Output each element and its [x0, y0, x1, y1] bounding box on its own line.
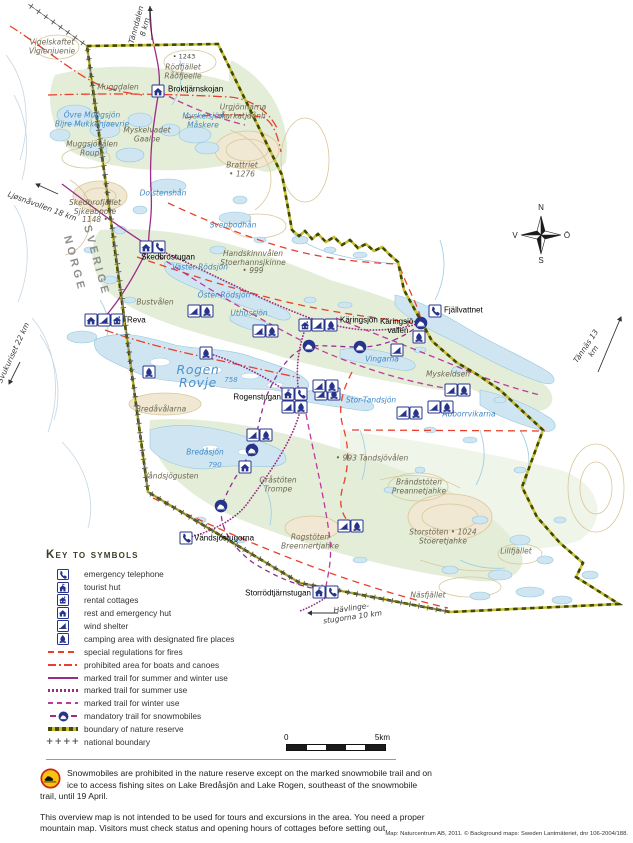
overview-note: This overview map is not intended to be … [40, 812, 432, 835]
purple-dash-swatch [48, 702, 78, 704]
legend-row-red-dash: special regulations for fires [46, 645, 316, 658]
legend-label: wind shelter [80, 621, 128, 631]
wind-shelter-icon [188, 305, 201, 318]
divider-line [46, 759, 396, 760]
wind-shelter-icon [253, 325, 266, 338]
wind-shelter-icon [391, 344, 404, 357]
legend-label: mandatory trail for snowmobiles [80, 711, 201, 721]
red-dashdot-swatch [48, 664, 78, 666]
legend: Key to symbols emergency telephonetouris… [46, 549, 316, 748]
camping-fireplace-icon [295, 401, 308, 414]
camping-fireplace-icon [201, 305, 214, 318]
snowmobile-warning: Snowmobiles are prohibited in the nature… [40, 768, 432, 803]
purple-dot-swatch [48, 689, 78, 691]
reserve-swatch [48, 727, 78, 730]
legend-label: prohibited area for boats and canoes [80, 660, 219, 670]
camping-fireplace-icon [351, 520, 364, 533]
scale-bar-segments [286, 744, 386, 751]
emergency-telephone-icon [57, 569, 69, 581]
scale-start-label: 0 [284, 733, 288, 742]
legend-label: rest and emergency hut [80, 608, 171, 618]
camping-fireplace-icon [413, 331, 426, 344]
legend-swatch [46, 569, 80, 581]
legend-label: emergency telephone [80, 569, 164, 579]
wind-shelter-icon [57, 620, 69, 632]
map-attribution: Map: Naturcentrum AB, 2011. © Background… [385, 831, 628, 837]
legend-title: Key to symbols [46, 549, 316, 561]
legend-row-cottage: rental cottages [46, 594, 316, 607]
wind-shelter-icon [282, 401, 295, 414]
legend-swatch [46, 607, 80, 619]
legend-row-resthut: rest and emergency hut [46, 607, 316, 620]
compass-west-label: V [512, 231, 518, 240]
legend-label: special regulations for fires [80, 647, 183, 657]
compass-east-label: Ö [564, 231, 570, 240]
map-stage: N Ö S V Vigelskaftet ViglenjuenieTänndal… [0, 0, 633, 843]
rental-cottage-icon [111, 314, 124, 327]
camping-fireplace-icon [260, 429, 273, 442]
legend-label: rental cottages [80, 595, 138, 605]
legend-swatch [46, 633, 80, 645]
legend-row-hut: tourist hut [46, 581, 316, 594]
tourist-hut-icon [282, 388, 295, 401]
camping-fireplace-icon [458, 384, 471, 397]
wind-shelter-icon [98, 314, 111, 327]
legend-row-phone: emergency telephone [46, 568, 316, 581]
legend-row-purple-dot: marked trail for summer use [46, 684, 316, 697]
compass-north-label: N [538, 203, 544, 212]
wind-shelter-icon [338, 520, 351, 533]
emergency-telephone-icon [429, 305, 442, 318]
legend-swatch [46, 620, 80, 632]
camping-fireplace-icon [325, 319, 338, 332]
legend-row-reserve: boundary of nature reserve [46, 723, 316, 736]
legend-label: boundary of nature reserve [80, 724, 184, 734]
scale-end-label: 5km [375, 733, 390, 742]
snowmobile-trail-icon [302, 339, 316, 353]
notes-block: Snowmobiles are prohibited in the nature… [40, 768, 432, 843]
legend-row-camp: camping area with designated fire places [46, 632, 316, 645]
snowmobile-prohibition-icon [40, 768, 61, 789]
wind-shelter-icon [312, 319, 325, 332]
snowmobile-trail-icon [414, 316, 428, 330]
rest-and-emergency-hut-icon [140, 241, 153, 254]
legend-label: marked trail for summer use [80, 685, 187, 695]
legend-row-wind: wind shelter [46, 620, 316, 633]
snowmobile-trail-swatch [46, 711, 80, 722]
emergency-telephone-icon [180, 532, 193, 545]
tourist-hut-icon [57, 582, 69, 594]
camping-fireplace-icon [441, 401, 454, 414]
wind-shelter-icon [247, 429, 260, 442]
rest-and-emergency-hut-icon [239, 461, 252, 474]
snowmobile-trail-icon [245, 443, 259, 457]
snowmobile-trail-icon [214, 499, 228, 513]
warning-text: Snowmobiles are prohibited in the nature… [40, 768, 432, 801]
wind-shelter-icon [397, 407, 410, 420]
rental-cottage-icon [57, 594, 69, 606]
red-dash-swatch [48, 651, 78, 653]
emergency-telephone-icon [326, 586, 339, 599]
rental-cottage-icon [299, 319, 312, 332]
compass-rose: N Ö S V [505, 200, 577, 266]
national-boundary-swatch: ++++ [46, 737, 80, 747]
rest-and-emergency-hut-icon [57, 607, 69, 619]
legend-row-sled-trail: mandatory trail for snowmobiles [46, 710, 316, 723]
legend-label: camping area with designated fire places [80, 634, 234, 644]
camping-fireplace-icon [326, 380, 339, 393]
legend-row-red-dashdot: prohibited area for boats and canoes [46, 658, 316, 671]
rest-and-emergency-hut-icon [152, 85, 165, 98]
legend-row-purple-dash: marked trail for winter use [46, 697, 316, 710]
legend-label: marked trail for summer and winter use [80, 673, 228, 683]
wind-shelter-icon [445, 384, 458, 397]
snowmobile-trail-icon [353, 340, 367, 354]
legend-label: tourist hut [80, 582, 120, 592]
legend-row-national: ++++national boundary [46, 736, 316, 749]
legend-label: marked trail for winter use [80, 698, 179, 708]
legend-row-purple-solid: marked trail for summer and winter use [46, 671, 316, 684]
camping-fireplace-icon [143, 366, 156, 379]
wind-shelter-icon [313, 380, 326, 393]
legend-swatch [46, 594, 80, 606]
camping-fireplace-icon [410, 407, 423, 420]
camping-fireplace-icon [200, 347, 213, 360]
legend-label: national boundary [80, 737, 150, 747]
rest-and-emergency-hut-icon [85, 314, 98, 327]
legend-swatch [46, 582, 80, 594]
emergency-telephone-icon [295, 388, 308, 401]
purple-solid-swatch [48, 677, 78, 679]
camping-fireplace-icon [57, 633, 69, 645]
legend-items: emergency telephonetourist hutrental cot… [46, 568, 316, 748]
camping-fireplace-icon [266, 325, 279, 338]
wind-shelter-icon [428, 401, 441, 414]
compass-south-label: S [538, 256, 543, 265]
compass-star [521, 216, 561, 254]
emergency-telephone-icon [153, 241, 166, 254]
scale-bar: 0 5km [284, 733, 390, 753]
